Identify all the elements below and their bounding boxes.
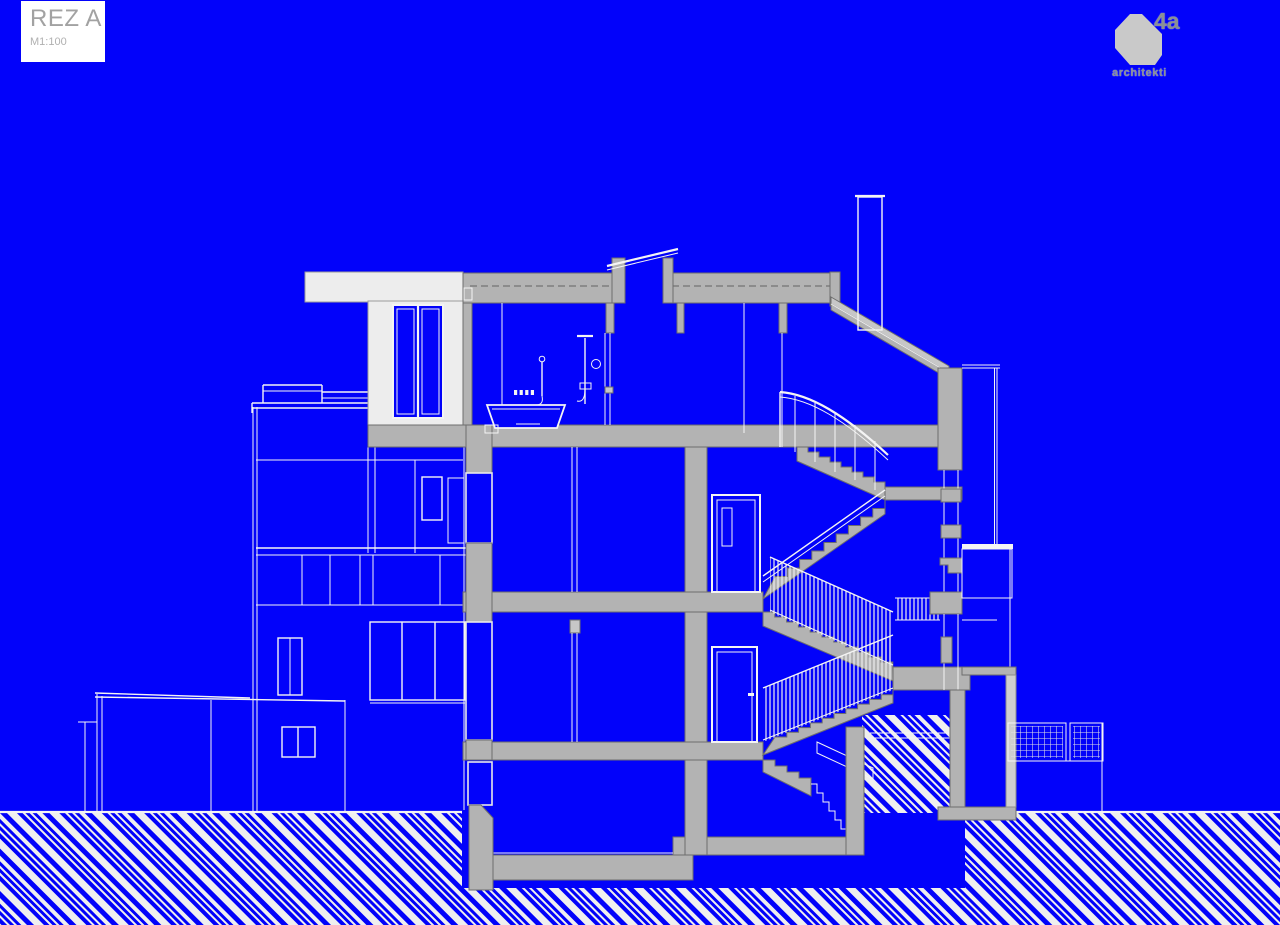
penthouse-jamb [463,303,472,425]
basement-right-wall [846,727,864,855]
basement-slab [471,855,693,880]
grille-panel-2 [1073,726,1100,758]
logo-mark: 4a [1154,8,1180,35]
skylight-curb-right [663,258,673,303]
door-first-floor [712,495,760,592]
first-floor-slab [463,592,763,612]
left-wall-window-2 [466,622,492,740]
left-wall-window-1 [466,473,492,543]
terrace-ledge [962,544,1013,549]
grille-panel-1 [1011,726,1063,758]
foundation-left [469,805,493,890]
drawing-scale: M1:100 [30,36,105,48]
terrace-slab [962,667,1016,675]
foundation-right [938,807,1016,820]
blueprint-page: REZ A M1:100 4a architekti [0,0,1280,925]
architect-logo: 4a architekti [1108,6,1194,88]
left-wall [466,425,493,890]
ground-floor-slab [463,742,763,760]
top-floor-slab [368,425,962,447]
title-block: REZ A M1:100 [21,1,105,62]
bathtub [487,405,565,428]
penthouse-fascia [305,272,463,302]
logo-name: architekti [1112,67,1167,79]
center-wall [685,447,707,855]
section-drawing [0,0,1280,925]
left-wall-window-3 [468,762,492,805]
drawing-title: REZ A [30,7,105,31]
